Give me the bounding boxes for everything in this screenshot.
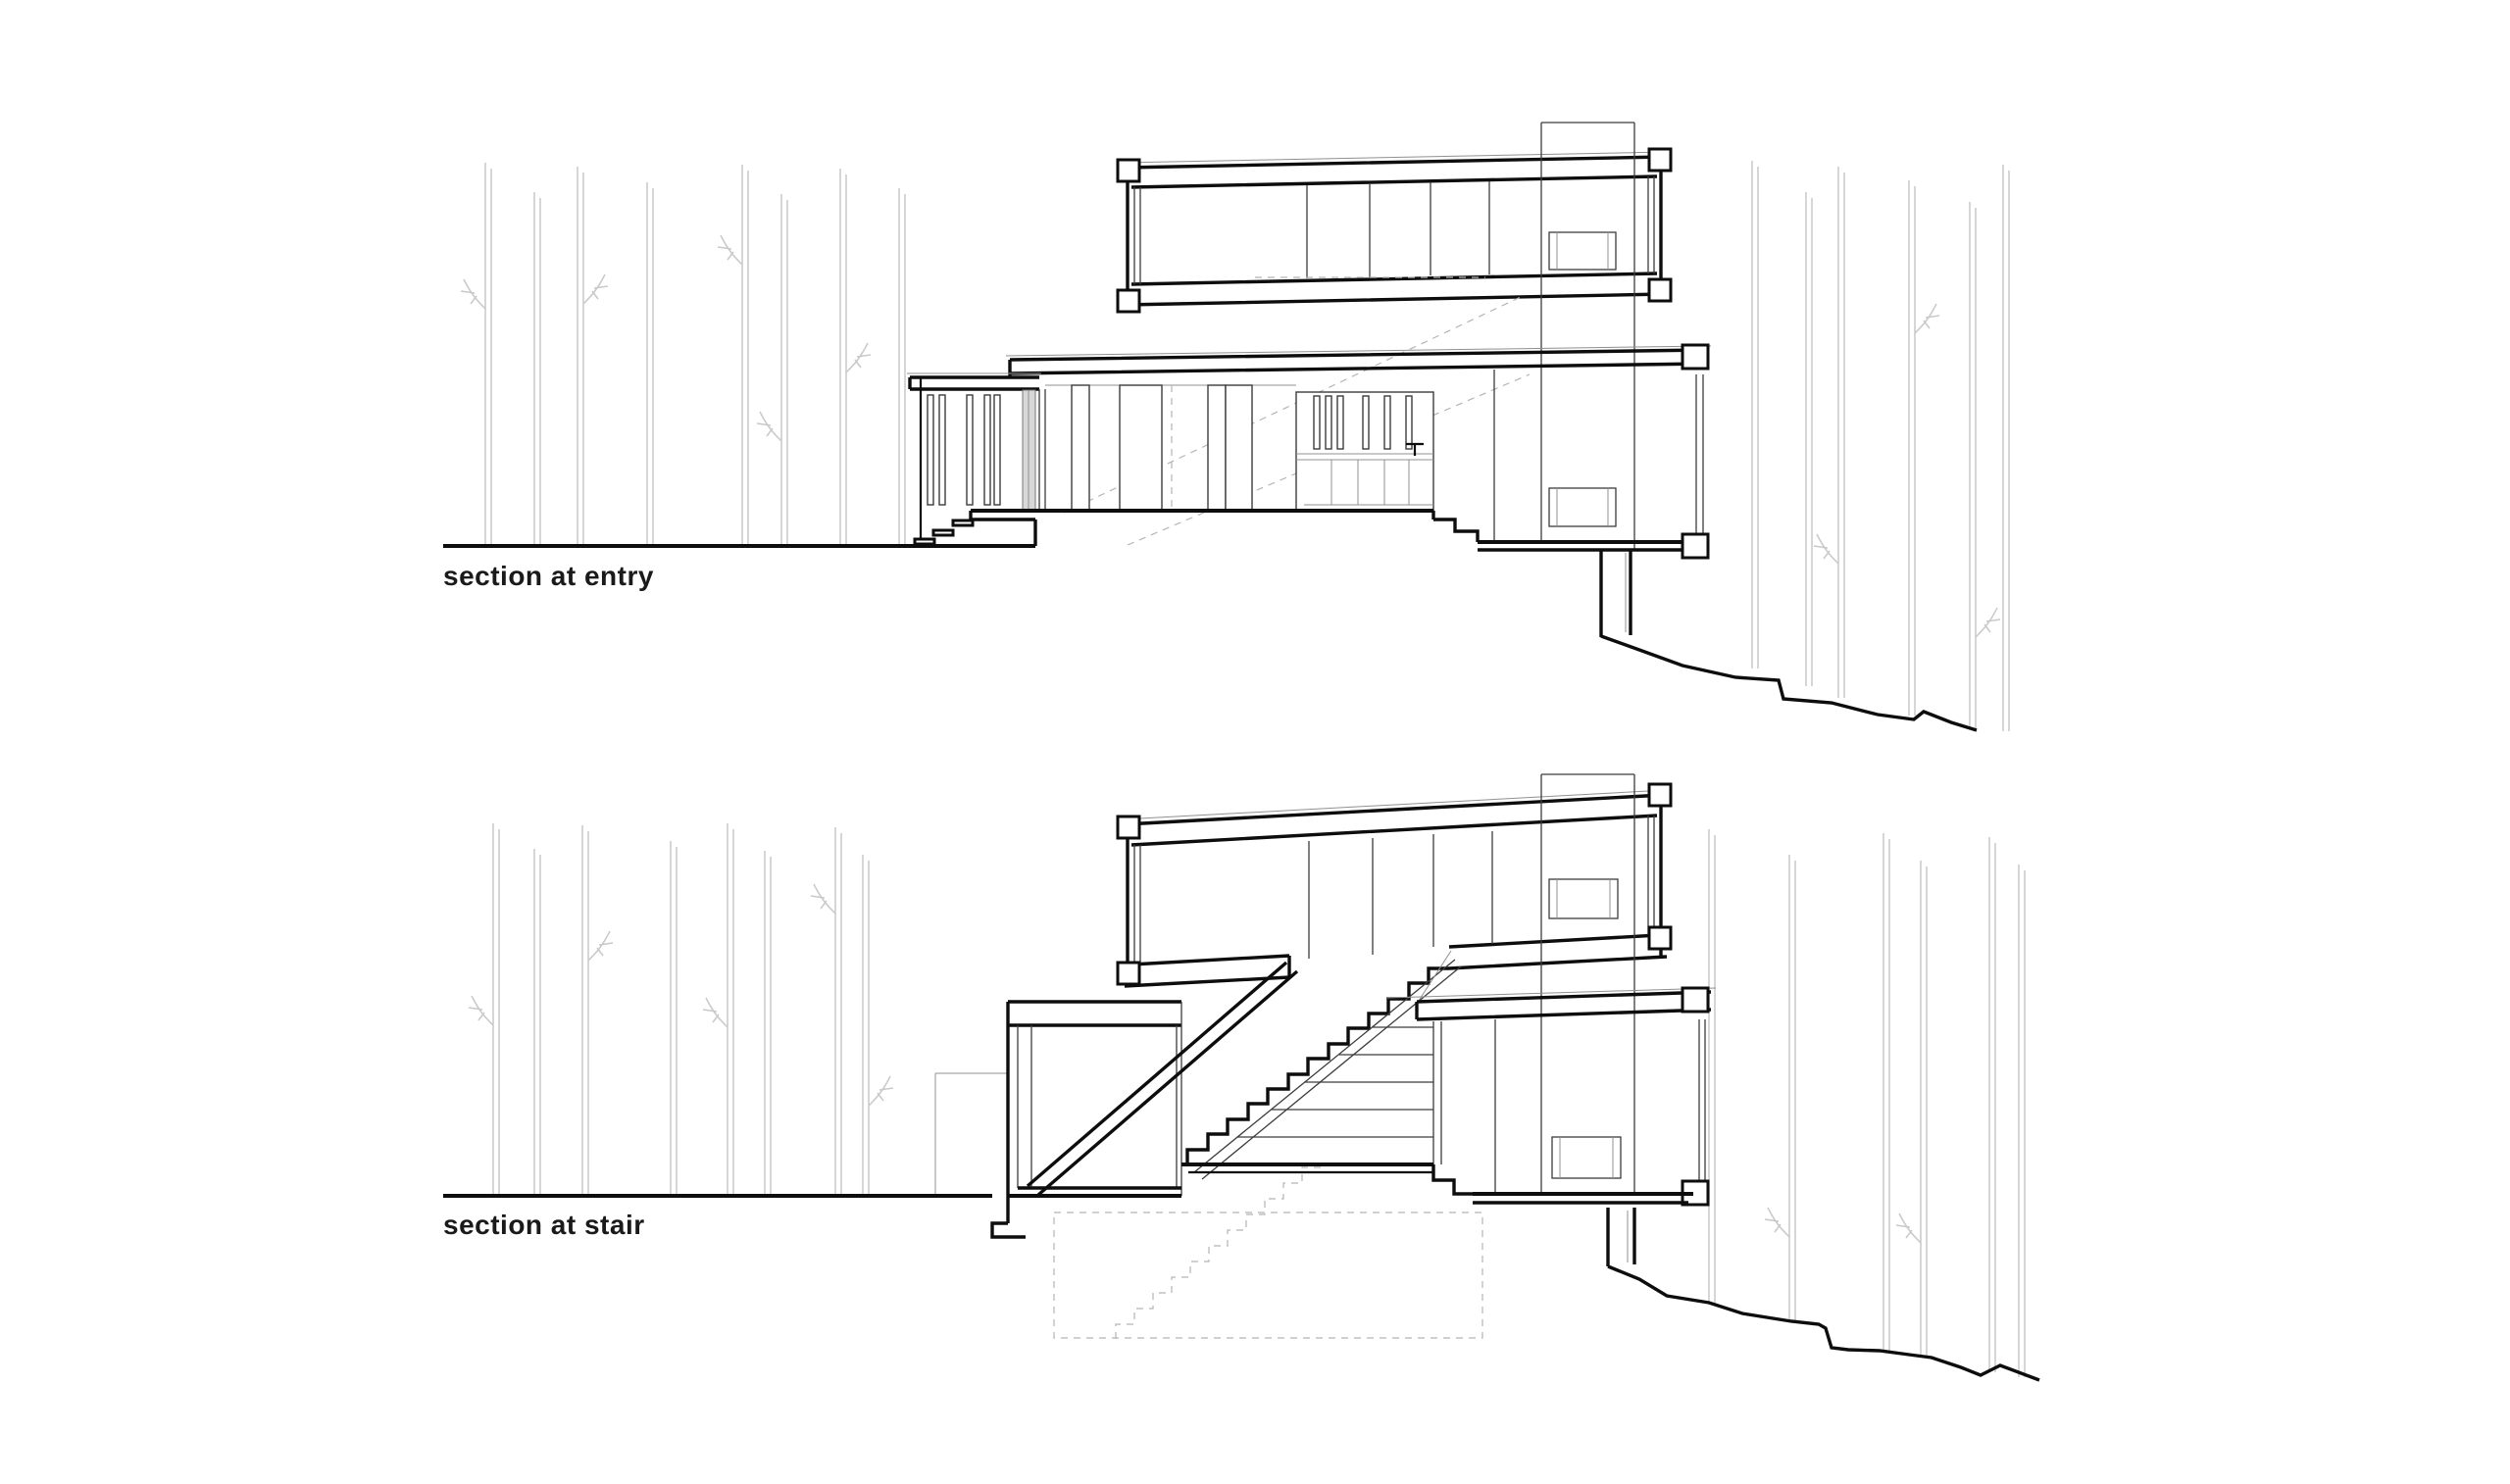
tree-branch [461, 279, 485, 309]
tree-trunk [493, 823, 499, 1194]
tree-branch [1814, 534, 1838, 564]
tree-branch [588, 931, 613, 961]
door-panel [1120, 385, 1162, 511]
tree-trunk [577, 167, 583, 545]
tree-grove-right [1752, 161, 2009, 731]
tree-trunk [728, 823, 733, 1194]
door-panel [1226, 385, 1252, 511]
stair-guard-rail [1028, 963, 1297, 1195]
porch-slat [984, 395, 990, 505]
tree-trunk [765, 851, 771, 1194]
upper-window [1549, 232, 1616, 270]
tree-branch [703, 998, 728, 1027]
cabinet-slat [1363, 396, 1369, 449]
chimney [1541, 123, 1634, 549]
tree-trunk [1970, 202, 1976, 729]
tree-branch [1976, 608, 2000, 637]
tree-trunk [1752, 161, 1758, 668]
tree-trunk [2003, 165, 2009, 731]
tree-branch [757, 412, 781, 441]
tree-branch [469, 996, 493, 1025]
tree-branch [1896, 1213, 1921, 1243]
tree-trunk [647, 182, 653, 545]
tree-trunk [1709, 829, 1715, 1304]
millwork-cabinet [1296, 392, 1433, 511]
tree-trunk [781, 194, 787, 545]
ground-line-right [1608, 1208, 2039, 1380]
tree-trunk [863, 855, 869, 1194]
stair-flight [1187, 951, 1461, 1179]
tree-branch [811, 884, 835, 914]
lower-window [1549, 488, 1616, 526]
tree-trunk [1883, 833, 1889, 1352]
tree-branch [583, 274, 608, 304]
tree-trunk [1806, 192, 1812, 686]
tree-branch [1765, 1208, 1789, 1237]
tree-branch [718, 235, 742, 265]
tree-trunk [1838, 167, 1844, 698]
entry-section-drawing [443, 123, 2009, 731]
entry-main-floor [907, 345, 1711, 558]
tree-branch [846, 343, 871, 372]
door-panel [1072, 385, 1089, 511]
tree-trunk [2019, 865, 2025, 1377]
cabinet-slat [1337, 396, 1343, 449]
porch-slat [994, 395, 1000, 505]
stair-right-room [1387, 988, 1716, 1205]
tree-trunk [1789, 855, 1795, 1321]
tree-trunk [1909, 180, 1915, 716]
entry-section-label: section at entry [443, 561, 654, 591]
tree-trunk [671, 841, 677, 1194]
entry-upper-pavilion [1118, 149, 1671, 312]
tree-trunk [1921, 861, 1927, 1357]
dashed-basement-outline [1054, 1167, 1482, 1340]
porch-slat [939, 395, 945, 505]
stair-upper-pavilion [1118, 784, 1671, 986]
cabinet-slat [1314, 396, 1320, 449]
tree-grove-left [469, 823, 893, 1194]
tree-trunk [742, 165, 748, 545]
retaining-wall [935, 1073, 1008, 1194]
tree-trunk [534, 849, 540, 1194]
cabinet-slat [1384, 396, 1390, 449]
porch-slat [928, 395, 933, 505]
tree-grove-left [461, 163, 905, 545]
annex-room [992, 1002, 1181, 1237]
stair-section-label: section at stair [443, 1210, 645, 1240]
chimney [1541, 774, 1634, 1193]
tree-trunk [534, 192, 540, 545]
drawing-sheet: section at entry section at stair [0, 0, 2510, 1484]
tree-trunk [835, 827, 841, 1194]
stair-section-drawing [443, 774, 2039, 1380]
tree-branch [1915, 304, 1939, 333]
tree-trunk [485, 163, 491, 545]
cabinet-slat [1406, 396, 1412, 449]
tree-trunk [899, 188, 905, 545]
porch-slat [967, 395, 973, 505]
door-panel [1208, 385, 1226, 511]
tree-grove-right [1709, 829, 2025, 1377]
upper-window [1549, 879, 1618, 918]
porch-slat-screen [928, 395, 1000, 505]
tree-trunk [1989, 837, 1995, 1372]
cabinet-slat [1326, 396, 1331, 449]
tree-trunk [582, 825, 588, 1194]
ground-line-right [1601, 549, 1977, 730]
tree-trunk [840, 169, 846, 545]
tree-branch [869, 1076, 893, 1106]
lower-window [1552, 1137, 1621, 1178]
stair-hall-floor [1181, 1164, 1473, 1194]
entry-steps [915, 520, 973, 544]
